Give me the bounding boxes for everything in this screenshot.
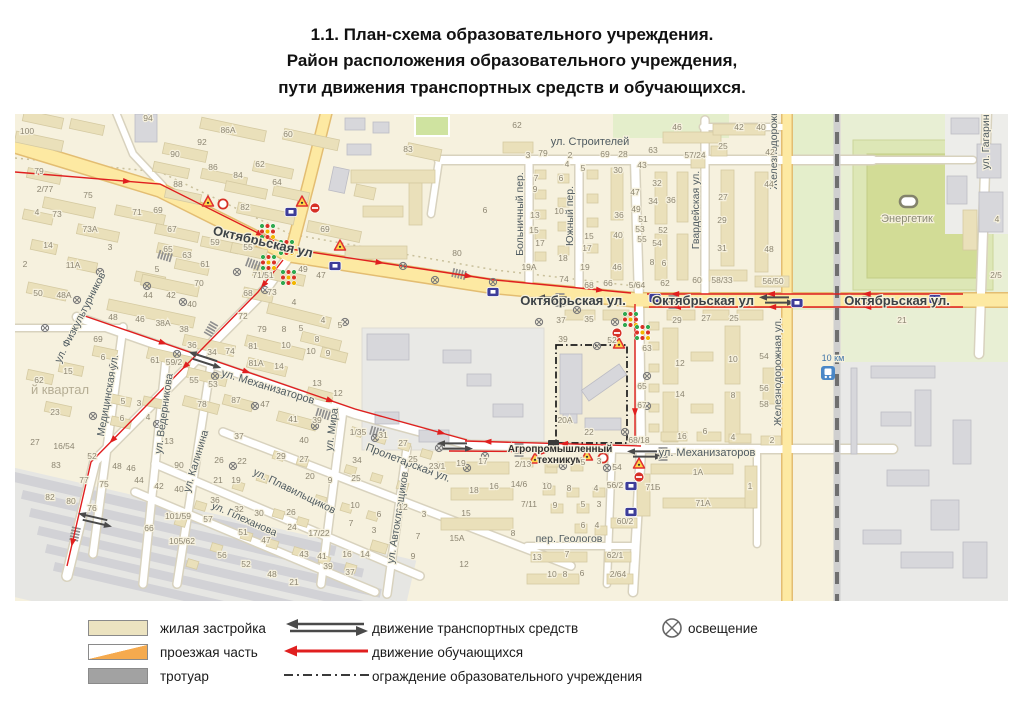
svg-text:100: 100 xyxy=(20,126,34,136)
svg-text:60/2: 60/2 xyxy=(617,516,634,526)
no-entry-sign-icon xyxy=(310,203,320,213)
svg-text:39: 39 xyxy=(323,561,333,571)
svg-text:5: 5 xyxy=(581,457,586,467)
svg-text:59: 59 xyxy=(210,237,220,247)
svg-text:28: 28 xyxy=(618,149,628,159)
svg-text:55: 55 xyxy=(189,375,199,385)
svg-text:37: 37 xyxy=(345,567,355,577)
svg-text:79: 79 xyxy=(257,324,267,334)
svg-text:21: 21 xyxy=(897,315,907,325)
svg-text:101/59: 101/59 xyxy=(165,511,191,521)
svg-text:16: 16 xyxy=(489,481,499,491)
svg-text:3: 3 xyxy=(597,456,602,466)
svg-text:18: 18 xyxy=(469,485,479,495)
bus-stop-icon xyxy=(285,208,297,217)
svg-text:83: 83 xyxy=(51,460,61,470)
svg-text:49: 49 xyxy=(631,204,641,214)
svg-text:4: 4 xyxy=(146,412,151,422)
svg-text:52: 52 xyxy=(658,225,668,235)
svg-text:61: 61 xyxy=(200,259,210,269)
svg-text:58: 58 xyxy=(759,399,769,409)
svg-text:82: 82 xyxy=(240,202,250,212)
svg-text:10 км: 10 км xyxy=(822,353,845,363)
svg-text:41: 41 xyxy=(317,551,327,561)
svg-text:42: 42 xyxy=(734,122,744,132)
svg-text:Энергетик: Энергетик xyxy=(881,213,933,225)
svg-text:14/6: 14/6 xyxy=(511,479,528,489)
svg-text:4: 4 xyxy=(594,483,599,493)
svg-text:41: 41 xyxy=(288,414,298,424)
svg-text:16: 16 xyxy=(342,549,352,559)
svg-text:69: 69 xyxy=(600,149,610,159)
svg-text:43: 43 xyxy=(299,549,309,559)
svg-text:77: 77 xyxy=(79,475,89,485)
legend-label-vehicles: движение транспортных средств xyxy=(372,621,578,636)
svg-text:11А: 11А xyxy=(66,260,81,270)
svg-text:48: 48 xyxy=(764,244,774,254)
svg-text:46: 46 xyxy=(126,463,136,473)
page: 1.1. План-схема образовательного учрежде… xyxy=(0,0,1024,723)
svg-text:69: 69 xyxy=(320,224,330,234)
svg-text:51: 51 xyxy=(238,527,248,537)
stadium-icon xyxy=(900,196,917,207)
svg-text:90: 90 xyxy=(174,460,184,470)
no-entry-sign-icon xyxy=(634,472,644,482)
svg-text:62: 62 xyxy=(512,120,522,130)
svg-text:29: 29 xyxy=(672,315,682,325)
svg-text:39: 39 xyxy=(558,334,568,344)
svg-text:105/62: 105/62 xyxy=(169,536,195,546)
svg-text:73А: 73А xyxy=(82,224,97,234)
bus-stop-icon xyxy=(791,299,803,308)
svg-text:43: 43 xyxy=(637,160,647,170)
svg-text:69: 69 xyxy=(153,205,163,215)
svg-text:73: 73 xyxy=(267,287,277,297)
svg-text:техникум: техникум xyxy=(537,455,583,466)
svg-text:59/2: 59/2 xyxy=(166,357,183,367)
svg-text:16/54: 16/54 xyxy=(53,441,75,451)
svg-text:38: 38 xyxy=(179,324,189,334)
svg-text:62/1: 62/1 xyxy=(607,550,624,560)
svg-text:46: 46 xyxy=(672,122,682,132)
svg-text:61: 61 xyxy=(150,355,160,365)
svg-text:10: 10 xyxy=(350,500,360,510)
svg-text:60: 60 xyxy=(692,275,702,285)
svg-text:8: 8 xyxy=(282,324,287,334)
legend-swatch-residential xyxy=(88,620,148,636)
svg-text:12: 12 xyxy=(333,388,343,398)
svg-text:46: 46 xyxy=(612,262,622,272)
svg-text:5/64: 5/64 xyxy=(629,280,646,290)
svg-text:19: 19 xyxy=(580,262,590,272)
svg-text:9: 9 xyxy=(553,500,558,510)
svg-text:54: 54 xyxy=(759,351,769,361)
svg-text:75: 75 xyxy=(99,479,109,489)
svg-text:17: 17 xyxy=(582,243,592,253)
svg-text:7: 7 xyxy=(416,531,421,541)
svg-text:31: 31 xyxy=(717,243,727,253)
svg-text:71Б: 71Б xyxy=(645,482,660,492)
svg-text:20А: 20А xyxy=(557,415,572,425)
train-station-icon xyxy=(821,366,835,380)
svg-text:51: 51 xyxy=(638,214,648,224)
svg-text:46: 46 xyxy=(135,314,145,324)
svg-text:3: 3 xyxy=(108,242,113,252)
svg-text:44: 44 xyxy=(134,475,144,485)
svg-text:10: 10 xyxy=(554,206,564,216)
svg-text:12: 12 xyxy=(459,559,469,569)
svg-text:40: 40 xyxy=(299,435,309,445)
svg-text:6: 6 xyxy=(377,509,382,519)
svg-text:22: 22 xyxy=(584,427,594,437)
svg-text:2/64: 2/64 xyxy=(610,569,627,579)
svg-text:3: 3 xyxy=(526,150,531,160)
svg-text:56/50: 56/50 xyxy=(762,276,784,286)
legend-label-residential: жилая застройка xyxy=(160,621,266,636)
svg-text:52: 52 xyxy=(241,559,251,569)
svg-text:4: 4 xyxy=(595,520,600,530)
svg-text:66: 66 xyxy=(603,278,613,288)
svg-text:81: 81 xyxy=(248,341,258,351)
svg-text:79: 79 xyxy=(34,166,44,176)
svg-text:47: 47 xyxy=(316,270,326,280)
svg-text:60: 60 xyxy=(283,129,293,139)
svg-text:21: 21 xyxy=(289,577,299,587)
svg-text:92: 92 xyxy=(197,137,207,147)
svg-text:5: 5 xyxy=(299,323,304,333)
svg-text:13: 13 xyxy=(164,436,174,446)
svg-text:8: 8 xyxy=(567,483,572,493)
legend-swatch-sidewalk xyxy=(88,668,148,684)
svg-text:56: 56 xyxy=(217,550,227,560)
svg-text:13: 13 xyxy=(312,378,322,388)
svg-text:64: 64 xyxy=(272,177,282,187)
svg-text:66: 66 xyxy=(144,523,154,533)
svg-text:73: 73 xyxy=(52,209,62,219)
legend-swatch-roadway xyxy=(88,644,148,660)
svg-text:27: 27 xyxy=(30,437,40,447)
svg-text:5: 5 xyxy=(155,264,160,274)
svg-text:26: 26 xyxy=(286,507,296,517)
svg-text:25: 25 xyxy=(351,473,361,483)
svg-text:68: 68 xyxy=(584,280,594,290)
svg-text:71/51: 71/51 xyxy=(252,270,274,280)
svg-text:7/11: 7/11 xyxy=(521,499,537,509)
svg-text:68: 68 xyxy=(243,288,253,298)
svg-text:24: 24 xyxy=(287,522,297,532)
svg-text:3: 3 xyxy=(422,509,427,519)
svg-text:42: 42 xyxy=(765,147,775,157)
svg-text:49: 49 xyxy=(298,264,308,274)
svg-text:9: 9 xyxy=(533,184,538,194)
svg-text:27: 27 xyxy=(701,313,711,323)
svg-text:7: 7 xyxy=(349,518,354,528)
title-line-2: Район расположения образовательного учре… xyxy=(0,48,1024,74)
svg-text:86А: 86А xyxy=(220,125,235,135)
svg-text:пер. Геологов: пер. Геологов xyxy=(536,533,603,545)
svg-text:36: 36 xyxy=(614,210,624,220)
svg-text:40: 40 xyxy=(613,230,623,240)
svg-text:25: 25 xyxy=(718,141,728,151)
svg-text:Агропромышленный: Агропромышленный xyxy=(508,444,613,455)
svg-text:27: 27 xyxy=(299,454,309,464)
svg-text:27: 27 xyxy=(398,438,408,448)
svg-text:75: 75 xyxy=(83,190,93,200)
svg-text:76: 76 xyxy=(87,503,97,513)
svg-text:17: 17 xyxy=(478,456,488,466)
svg-text:80: 80 xyxy=(452,248,462,258)
svg-text:54: 54 xyxy=(652,238,662,248)
svg-text:34: 34 xyxy=(207,347,217,357)
svg-text:7: 7 xyxy=(534,173,539,183)
svg-text:ул. Механизаторов: ул. Механизаторов xyxy=(659,447,756,459)
svg-text:8: 8 xyxy=(563,569,568,579)
svg-text:36: 36 xyxy=(187,340,197,350)
svg-text:32: 32 xyxy=(234,504,244,514)
svg-text:12: 12 xyxy=(398,502,408,512)
svg-text:14: 14 xyxy=(675,389,685,399)
svg-text:69: 69 xyxy=(93,334,103,344)
svg-text:5: 5 xyxy=(581,499,586,509)
svg-text:81А: 81А xyxy=(248,358,263,368)
svg-text:82: 82 xyxy=(45,492,55,502)
svg-text:5: 5 xyxy=(581,163,586,173)
svg-text:ул. Гагарина: ул. Гагарина xyxy=(980,114,992,169)
svg-text:14: 14 xyxy=(43,240,53,250)
svg-text:37: 37 xyxy=(556,315,566,325)
svg-text:57: 57 xyxy=(203,514,213,524)
svg-text:10: 10 xyxy=(306,346,316,356)
svg-text:71: 71 xyxy=(132,207,142,217)
svg-text:34: 34 xyxy=(352,455,362,465)
svg-text:16: 16 xyxy=(677,431,687,441)
svg-text:48: 48 xyxy=(112,461,122,471)
svg-text:Октябрьская ул: Октябрьская ул xyxy=(652,293,754,308)
svg-text:Южный пер.: Южный пер. xyxy=(564,186,576,246)
svg-text:71А: 71А xyxy=(695,498,710,508)
svg-text:6: 6 xyxy=(662,258,667,268)
svg-text:42: 42 xyxy=(166,290,176,300)
svg-text:4: 4 xyxy=(731,432,736,442)
svg-text:40: 40 xyxy=(756,122,766,132)
svg-text:23: 23 xyxy=(50,407,60,417)
svg-text:98: 98 xyxy=(58,114,68,116)
svg-text:6: 6 xyxy=(581,520,586,530)
svg-text:38А: 38А xyxy=(155,318,170,328)
svg-text:19: 19 xyxy=(456,458,466,468)
svg-text:9: 9 xyxy=(328,475,333,485)
svg-text:68/18: 68/18 xyxy=(628,435,650,445)
svg-text:20: 20 xyxy=(305,471,315,481)
svg-text:22: 22 xyxy=(237,456,247,466)
svg-text:12: 12 xyxy=(675,358,685,368)
fence-legend-icon xyxy=(282,670,372,680)
svg-text:3: 3 xyxy=(372,525,377,535)
svg-text:4: 4 xyxy=(995,214,1000,224)
svg-text:21: 21 xyxy=(213,475,223,485)
svg-text:78: 78 xyxy=(197,399,207,409)
map-canvas: Октябрьская улОктябрьская ул.Октябрьская… xyxy=(15,114,1008,601)
school-area-map: Октябрьская улОктябрьская ул.Октябрьская… xyxy=(15,114,1008,601)
page-title: 1.1. План-схема образовательного учрежде… xyxy=(0,22,1024,101)
svg-text:67: 67 xyxy=(167,224,177,234)
svg-text:4: 4 xyxy=(292,297,297,307)
svg-text:74: 74 xyxy=(225,346,235,356)
svg-text:18: 18 xyxy=(558,253,568,263)
svg-text:4: 4 xyxy=(35,207,40,217)
svg-text:63: 63 xyxy=(642,343,652,353)
svg-text:2/77: 2/77 xyxy=(37,184,54,194)
svg-text:15: 15 xyxy=(461,508,471,518)
svg-text:1/35: 1/35 xyxy=(350,427,367,437)
svg-text:62: 62 xyxy=(255,159,265,169)
svg-text:14: 14 xyxy=(360,549,370,559)
svg-text:42: 42 xyxy=(154,481,164,491)
svg-text:52: 52 xyxy=(607,335,617,345)
svg-text:39: 39 xyxy=(312,415,322,425)
svg-text:55: 55 xyxy=(243,242,253,252)
title-line-3: пути движения транспортных средств и обу… xyxy=(0,75,1024,101)
svg-text:27: 27 xyxy=(718,192,728,202)
svg-text:94: 94 xyxy=(143,114,153,123)
svg-text:8: 8 xyxy=(731,390,736,400)
svg-text:8: 8 xyxy=(650,257,655,267)
svg-text:Железнодорожная ул.: Железнодорожная ул. xyxy=(772,318,784,426)
legend-label-lighting: освещение xyxy=(688,621,758,636)
svg-text:8: 8 xyxy=(511,528,516,538)
svg-text:9: 9 xyxy=(411,551,416,561)
svg-text:56/2: 56/2 xyxy=(607,480,624,490)
svg-text:19: 19 xyxy=(231,475,241,485)
svg-text:6: 6 xyxy=(101,352,106,362)
legend: жилая застройка проезжая часть тротуар д… xyxy=(0,608,1024,718)
svg-text:17: 17 xyxy=(535,238,545,248)
legend-label-students: движение обучающихся xyxy=(372,645,523,660)
svg-text:86: 86 xyxy=(208,162,218,172)
svg-text:47: 47 xyxy=(261,535,271,545)
svg-text:36: 36 xyxy=(666,195,676,205)
svg-text:34: 34 xyxy=(648,196,658,206)
bus-stop-icon xyxy=(487,288,499,297)
svg-text:83: 83 xyxy=(403,144,413,154)
vehicle-flow-legend-icon xyxy=(282,618,372,638)
svg-text:3: 3 xyxy=(137,398,142,408)
svg-text:6: 6 xyxy=(120,413,125,423)
svg-text:Октябрьская ул.: Октябрьская ул. xyxy=(520,293,626,308)
svg-text:6: 6 xyxy=(703,426,708,436)
svg-text:36: 36 xyxy=(210,495,220,505)
svg-text:26: 26 xyxy=(214,455,224,465)
svg-text:10: 10 xyxy=(542,481,552,491)
svg-text:2: 2 xyxy=(770,435,775,445)
svg-text:15: 15 xyxy=(63,366,73,376)
svg-text:32: 32 xyxy=(652,178,662,188)
svg-text:25: 25 xyxy=(729,313,739,323)
svg-text:65: 65 xyxy=(163,244,173,254)
legend-label-sidewalk: тротуар xyxy=(160,669,209,684)
svg-text:80: 80 xyxy=(66,496,76,506)
svg-text:48: 48 xyxy=(108,312,118,322)
svg-text:65: 65 xyxy=(637,381,647,391)
legend-label-roadway: проезжая часть xyxy=(160,645,258,660)
svg-text:58/33: 58/33 xyxy=(711,275,733,285)
bus-stop-icon xyxy=(625,482,637,491)
svg-text:15: 15 xyxy=(529,225,539,235)
svg-text:19А: 19А xyxy=(521,262,536,272)
svg-text:10: 10 xyxy=(728,354,738,364)
svg-text:90: 90 xyxy=(170,149,180,159)
svg-text:23/1: 23/1 xyxy=(429,461,446,471)
svg-text:44: 44 xyxy=(143,290,153,300)
svg-text:14: 14 xyxy=(274,361,284,371)
svg-text:56: 56 xyxy=(759,383,769,393)
svg-text:44: 44 xyxy=(764,179,774,189)
svg-text:7: 7 xyxy=(565,549,570,559)
svg-text:ул. Строителей: ул. Строителей xyxy=(551,136,630,148)
svg-text:47: 47 xyxy=(630,187,640,197)
svg-text:40: 40 xyxy=(187,299,197,309)
svg-text:57/24: 57/24 xyxy=(684,150,706,160)
svg-text:30: 30 xyxy=(613,165,623,175)
svg-text:62: 62 xyxy=(34,375,44,385)
svg-text:47: 47 xyxy=(260,399,270,409)
svg-text:4: 4 xyxy=(321,315,326,325)
svg-text:54: 54 xyxy=(612,462,622,472)
svg-text:48А: 48А xyxy=(56,290,71,300)
svg-text:17/22: 17/22 xyxy=(308,528,330,538)
svg-text:30: 30 xyxy=(254,508,264,518)
svg-text:1А: 1А xyxy=(693,467,704,477)
svg-text:Октябрьская ул.: Октябрьская ул. xyxy=(844,293,950,308)
prohibition-sign-icon xyxy=(218,199,227,208)
svg-text:53: 53 xyxy=(208,379,218,389)
svg-text:6: 6 xyxy=(559,173,564,183)
svg-text:Больничный пер.: Больничный пер. xyxy=(514,172,526,256)
svg-text:79: 79 xyxy=(538,148,548,158)
svg-text:52: 52 xyxy=(87,451,97,461)
svg-text:13: 13 xyxy=(530,210,540,220)
svg-text:50: 50 xyxy=(33,288,43,298)
svg-text:15А: 15А xyxy=(449,533,464,543)
svg-text:63: 63 xyxy=(182,250,192,260)
svg-text:10: 10 xyxy=(281,340,291,350)
svg-text:37: 37 xyxy=(234,431,244,441)
svg-text:4: 4 xyxy=(565,159,570,169)
legend-label-fence: ограждение образовательного учреждения xyxy=(372,669,642,684)
svg-text:10: 10 xyxy=(547,569,557,579)
svg-text:70: 70 xyxy=(194,278,204,288)
svg-text:55: 55 xyxy=(637,234,647,244)
bus-stop-icon xyxy=(329,262,341,271)
svg-text:25: 25 xyxy=(408,454,418,464)
student-flow-legend-icon xyxy=(282,644,372,658)
svg-text:8: 8 xyxy=(315,334,320,344)
svg-text:48: 48 xyxy=(267,569,277,579)
svg-text:29: 29 xyxy=(717,215,727,225)
svg-text:53: 53 xyxy=(635,224,645,234)
svg-text:5: 5 xyxy=(121,396,126,406)
svg-text:35: 35 xyxy=(584,314,594,324)
svg-text:3: 3 xyxy=(597,499,602,509)
svg-text:5: 5 xyxy=(338,320,343,330)
svg-text:Гвардейская ул.: Гвардейская ул. xyxy=(690,171,702,249)
svg-text:1: 1 xyxy=(748,481,753,491)
svg-text:87: 87 xyxy=(231,395,241,405)
svg-text:62: 62 xyxy=(660,278,670,288)
svg-text:84: 84 xyxy=(233,170,243,180)
svg-text:31: 31 xyxy=(378,430,388,440)
svg-text:74: 74 xyxy=(559,274,569,284)
